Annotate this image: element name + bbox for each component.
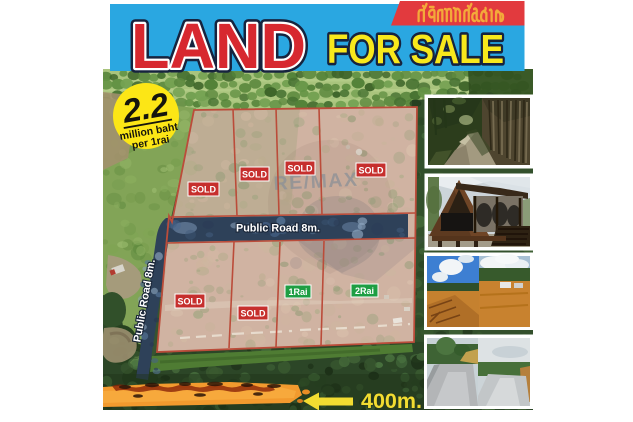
svg-text:SOLD: SOLD <box>287 164 313 174</box>
svg-text:1Rai: 1Rai <box>288 287 307 297</box>
svg-text:SOLD: SOLD <box>242 170 268 180</box>
svg-text:Public Road 8m.: Public Road 8m. <box>236 223 320 235</box>
svg-text:400m.: 400m. <box>361 389 422 413</box>
svg-text:2Rai: 2Rai <box>355 286 374 296</box>
svg-text:FOR SALE: FOR SALE <box>327 26 504 72</box>
svg-text:SOLD: SOLD <box>191 185 217 195</box>
svg-text:SOLD: SOLD <box>358 166 384 176</box>
svg-text:SOLD: SOLD <box>177 297 203 307</box>
svg-text:LAND: LAND <box>131 10 306 82</box>
svg-text:SOLD: SOLD <box>240 309 266 319</box>
